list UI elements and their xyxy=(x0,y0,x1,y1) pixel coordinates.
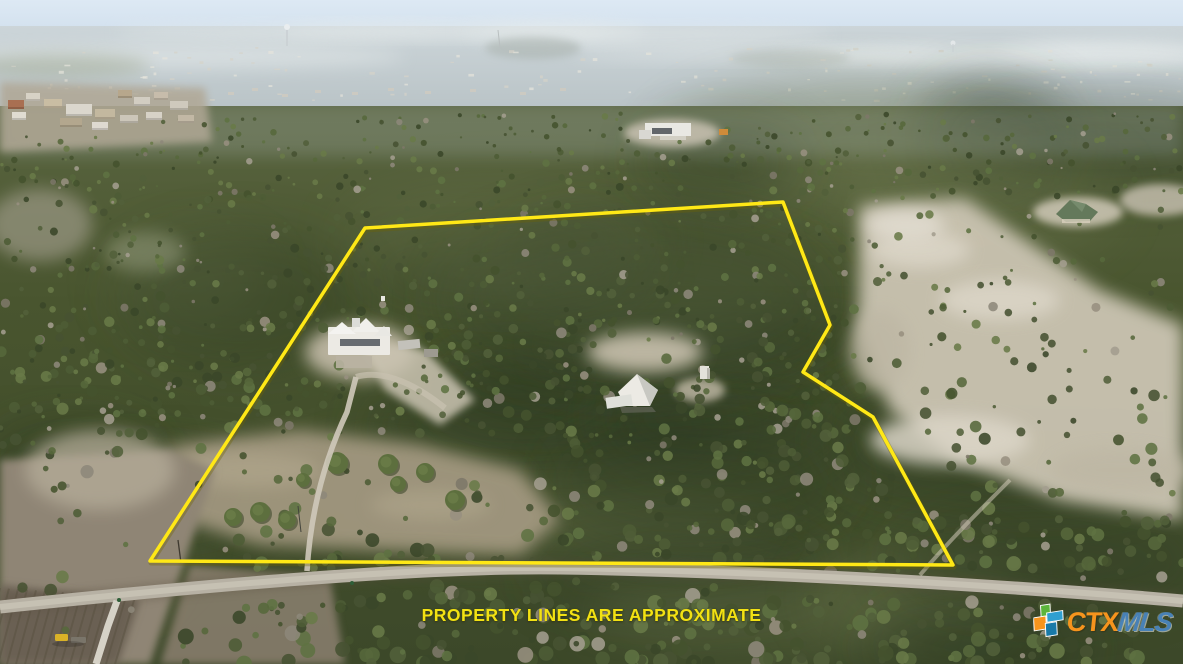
icon-quad-orange xyxy=(1034,616,1047,631)
ctx-mls-texas-icon xyxy=(1031,603,1067,641)
logo-text-mls: MLS xyxy=(1117,609,1174,636)
icon-quad-teal xyxy=(1045,622,1057,637)
icon-quad-blue xyxy=(1047,610,1064,622)
logo-text-ctx: CTX xyxy=(1066,609,1120,636)
aerial-photo-scene xyxy=(0,0,1183,664)
property-disclaimer-text: PROPERTY LINES ARE APPROXIMATE xyxy=(0,605,1183,626)
aerial-property-photo: PROPERTY LINES ARE APPROXIMATE CTX MLS xyxy=(0,0,1183,664)
ctx-mls-logo: CTX MLS xyxy=(1031,603,1174,641)
